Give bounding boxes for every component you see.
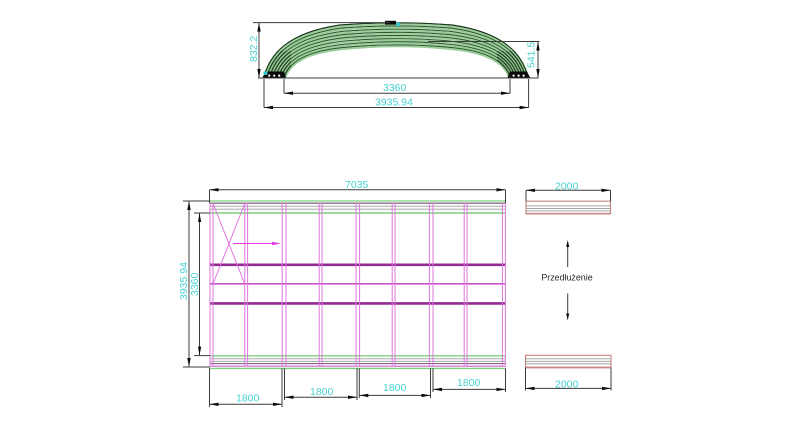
svg-text:832.2: 832.2 <box>248 36 260 62</box>
svg-text:3360: 3360 <box>189 272 201 296</box>
svg-text:Przedłużenie: Przedłużenie <box>541 273 592 283</box>
svg-text:3360: 3360 <box>383 82 407 94</box>
svg-text:1800: 1800 <box>457 377 481 389</box>
svg-text:3935.94: 3935.94 <box>375 96 413 108</box>
svg-text:1800: 1800 <box>310 386 334 398</box>
svg-text:1800: 1800 <box>236 393 260 405</box>
svg-text:1800: 1800 <box>383 382 407 394</box>
svg-text:7035: 7035 <box>345 179 369 191</box>
svg-text:2000: 2000 <box>555 180 579 192</box>
svg-text:541.5: 541.5 <box>526 42 538 68</box>
svg-text:2000: 2000 <box>555 378 579 390</box>
